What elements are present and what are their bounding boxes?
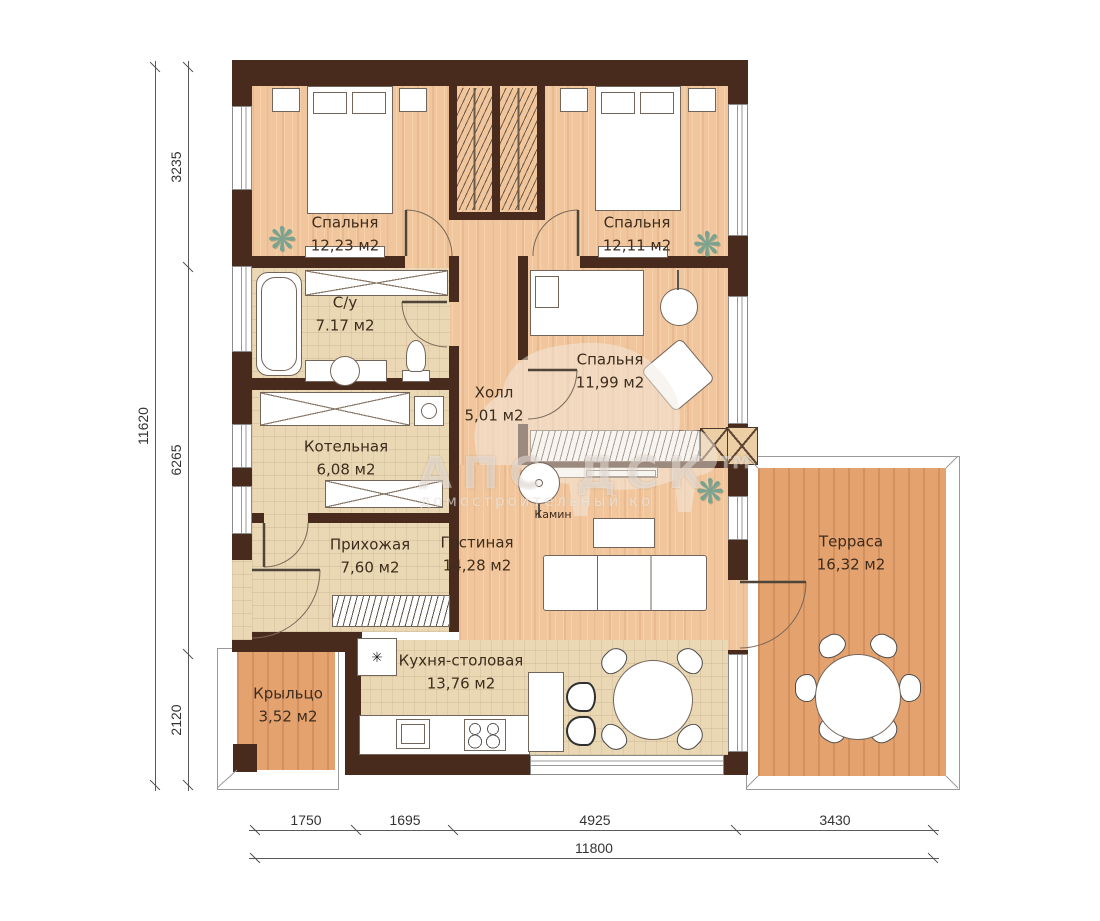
room-name: Котельная [304, 436, 388, 459]
stove [464, 719, 506, 751]
dim-left-1: 6265 [168, 444, 184, 475]
room-label-terrace: Терраса 16,32 м2 [817, 531, 886, 576]
dim-line-left-total [155, 61, 156, 791]
room-area: 6,08 м2 [304, 458, 388, 481]
round-table-lamp [660, 288, 698, 326]
washbasin [330, 356, 360, 386]
room-area: 5,01 м2 [464, 404, 523, 427]
room-area: 7.17 м2 [315, 314, 374, 337]
dim-bottom-0: 1750 [290, 812, 321, 828]
window-entry [232, 486, 252, 534]
watermark-subtitle: домостроительный ко [420, 492, 653, 510]
room-name: Терраса [817, 531, 886, 554]
wall-hall-left-a [449, 256, 459, 302]
dim-bottom-3: 3430 [819, 812, 850, 828]
pillow [640, 92, 674, 114]
room-area: 13,76 м2 [399, 672, 524, 695]
room-label-kitchen: Кухня-столовая 13,76 м2 [399, 650, 524, 695]
dim-line-left-segments [188, 61, 189, 791]
fridge: ✳ [357, 638, 397, 676]
floor-plan: ❋ ❋ ❋ ✳ [0, 0, 1100, 921]
room-name: Кухня-столовая [399, 650, 524, 673]
room-label-entry: Прихожая 7,60 м2 [330, 534, 410, 579]
washing-machine-door [421, 403, 437, 419]
room-name: Прихожая [330, 534, 410, 557]
window-boiler [232, 424, 252, 468]
coat-rack [332, 595, 450, 627]
nightstand [560, 88, 588, 112]
pillow [352, 92, 386, 114]
room-area: 12,23 м2 [311, 234, 380, 257]
porch-step [233, 744, 257, 772]
wall-wardrobe-mid [492, 86, 500, 212]
room-name: Гостиная [440, 532, 513, 555]
plant-icon: ❋ [268, 223, 297, 257]
wall-boiler-bottom-a [252, 513, 264, 523]
dim-bottom-2: 4925 [579, 812, 610, 828]
plant-icon: ❋ [693, 228, 722, 262]
wall-boiler-bottom-b [308, 513, 450, 523]
wall-hall-right-a [518, 256, 528, 360]
dim-left-0: 3235 [168, 151, 184, 182]
room-area: 12,11 м2 [603, 234, 672, 257]
wall-wardrobe-bottom [449, 212, 545, 220]
room-area: 3,52 м2 [253, 705, 323, 728]
nightstand [272, 88, 300, 112]
room-area: 11,99 м2 [576, 371, 645, 394]
pillow [535, 276, 559, 308]
nightstand [399, 88, 427, 112]
coffee-table [593, 518, 655, 548]
wardrobe-cell-2 [500, 88, 537, 210]
kitchen-sink-basin [401, 724, 425, 744]
pillow [601, 92, 635, 114]
dim-bottom-total: 11800 [575, 840, 613, 856]
window-living [728, 496, 748, 540]
terrace-chair [899, 674, 921, 702]
terrace-chair [795, 674, 817, 702]
dim-line-bottom-segments [249, 830, 939, 831]
dim-line-bottom-total [249, 858, 939, 859]
sofa [543, 555, 707, 611]
room-area: 14,28 м2 [440, 554, 513, 577]
window-bedroom2 [728, 104, 748, 236]
window-bathroom [232, 266, 252, 352]
room-name: Крыльцо [253, 683, 323, 706]
room-name: Холл [464, 382, 523, 405]
room-name: Спальня [576, 349, 645, 372]
island-bar [528, 672, 564, 752]
wall-wardrobe-left [449, 86, 457, 212]
dining-table [613, 660, 693, 740]
dim-left-2: 2120 [168, 704, 184, 735]
room-label-living: Гостиная 14,28 м2 [440, 532, 513, 577]
doorway-terrace [728, 580, 748, 650]
nightstand [688, 88, 716, 112]
boiler-cabinet-top [260, 392, 410, 426]
pillow [313, 92, 347, 114]
room-label-bathroom: С/у 7.17 м2 [315, 292, 374, 337]
bar-stool [566, 716, 596, 746]
room-label-porch: Крыльцо 3,52 м2 [253, 683, 323, 728]
window-bedroom3 [728, 296, 748, 424]
room-label-hall: Холл 5,01 м2 [464, 382, 523, 427]
dim-bottom-1: 1695 [389, 812, 420, 828]
dim-left-total: 11620 [135, 407, 151, 445]
toilet-bowl [406, 340, 426, 372]
terrace-table [815, 654, 901, 740]
room-name: С/у [315, 292, 374, 315]
doorway-entrance [232, 560, 252, 640]
window-dining [728, 654, 748, 752]
wardrobe-cell-1 [457, 88, 492, 210]
wall-wardrobe-right [537, 86, 545, 212]
room-label-bedroom1: Спальня 12,23 м2 [311, 212, 380, 257]
room-name: Спальня [311, 212, 380, 235]
room-label-bedroom2: Спальня 12,11 м2 [603, 212, 672, 257]
bathtub-inner [261, 277, 297, 371]
room-label-boiler: Котельная 6,08 м2 [304, 436, 388, 481]
frost-icon: ✳ [371, 650, 383, 666]
bar-stool [566, 682, 596, 712]
room-area: 16,32 м2 [817, 553, 886, 576]
wall-top [232, 60, 748, 86]
window-bedroom1 [232, 106, 252, 190]
lamp-icon [677, 270, 679, 290]
window-kitchen-panoramic [530, 755, 724, 775]
room-label-bedroom3: Спальня 11,99 м2 [576, 349, 645, 394]
room-area: 7,60 м2 [330, 556, 410, 579]
room-name: Спальня [603, 212, 672, 235]
